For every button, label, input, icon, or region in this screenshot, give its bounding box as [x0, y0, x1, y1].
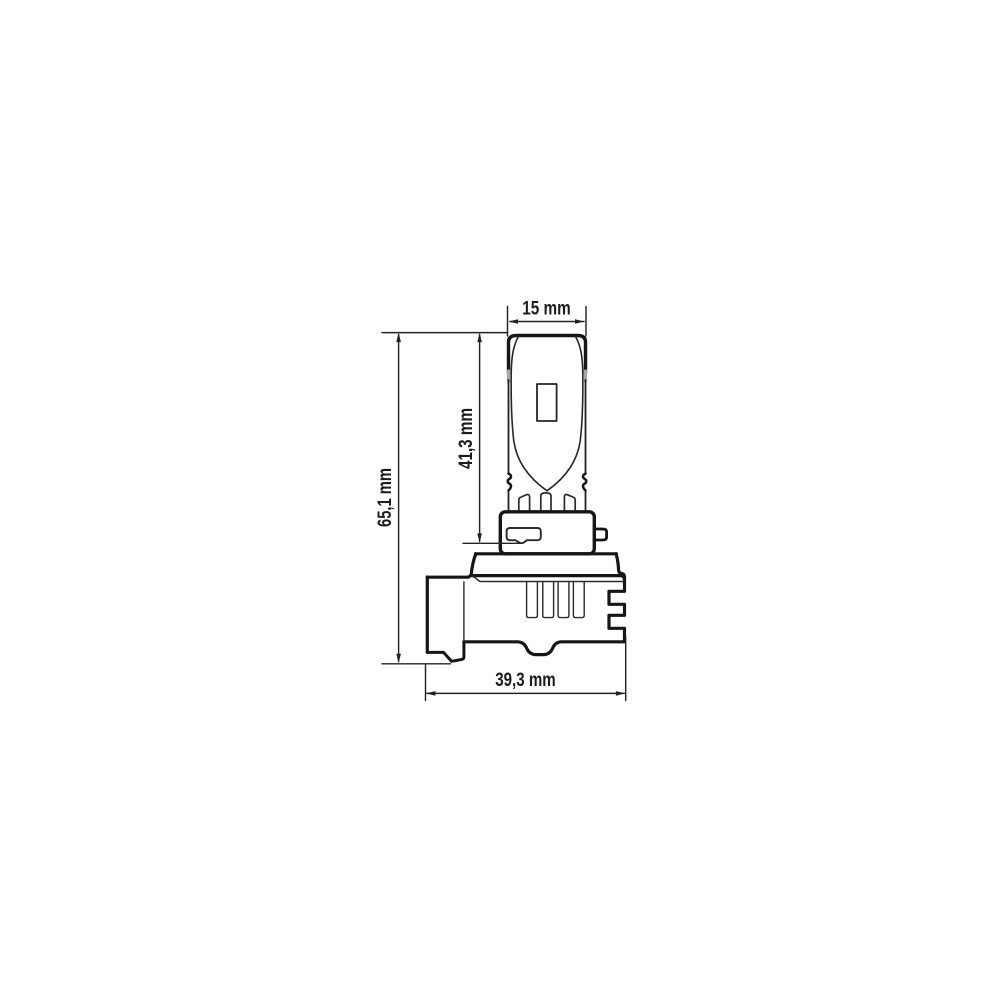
svg-text:41,3 mm: 41,3 mm — [455, 408, 477, 469]
svg-text:15 mm: 15 mm — [522, 298, 571, 320]
svg-text:39,3 mm: 39,3 mm — [495, 669, 556, 691]
svg-text:65,1 mm: 65,1 mm — [374, 468, 396, 527]
